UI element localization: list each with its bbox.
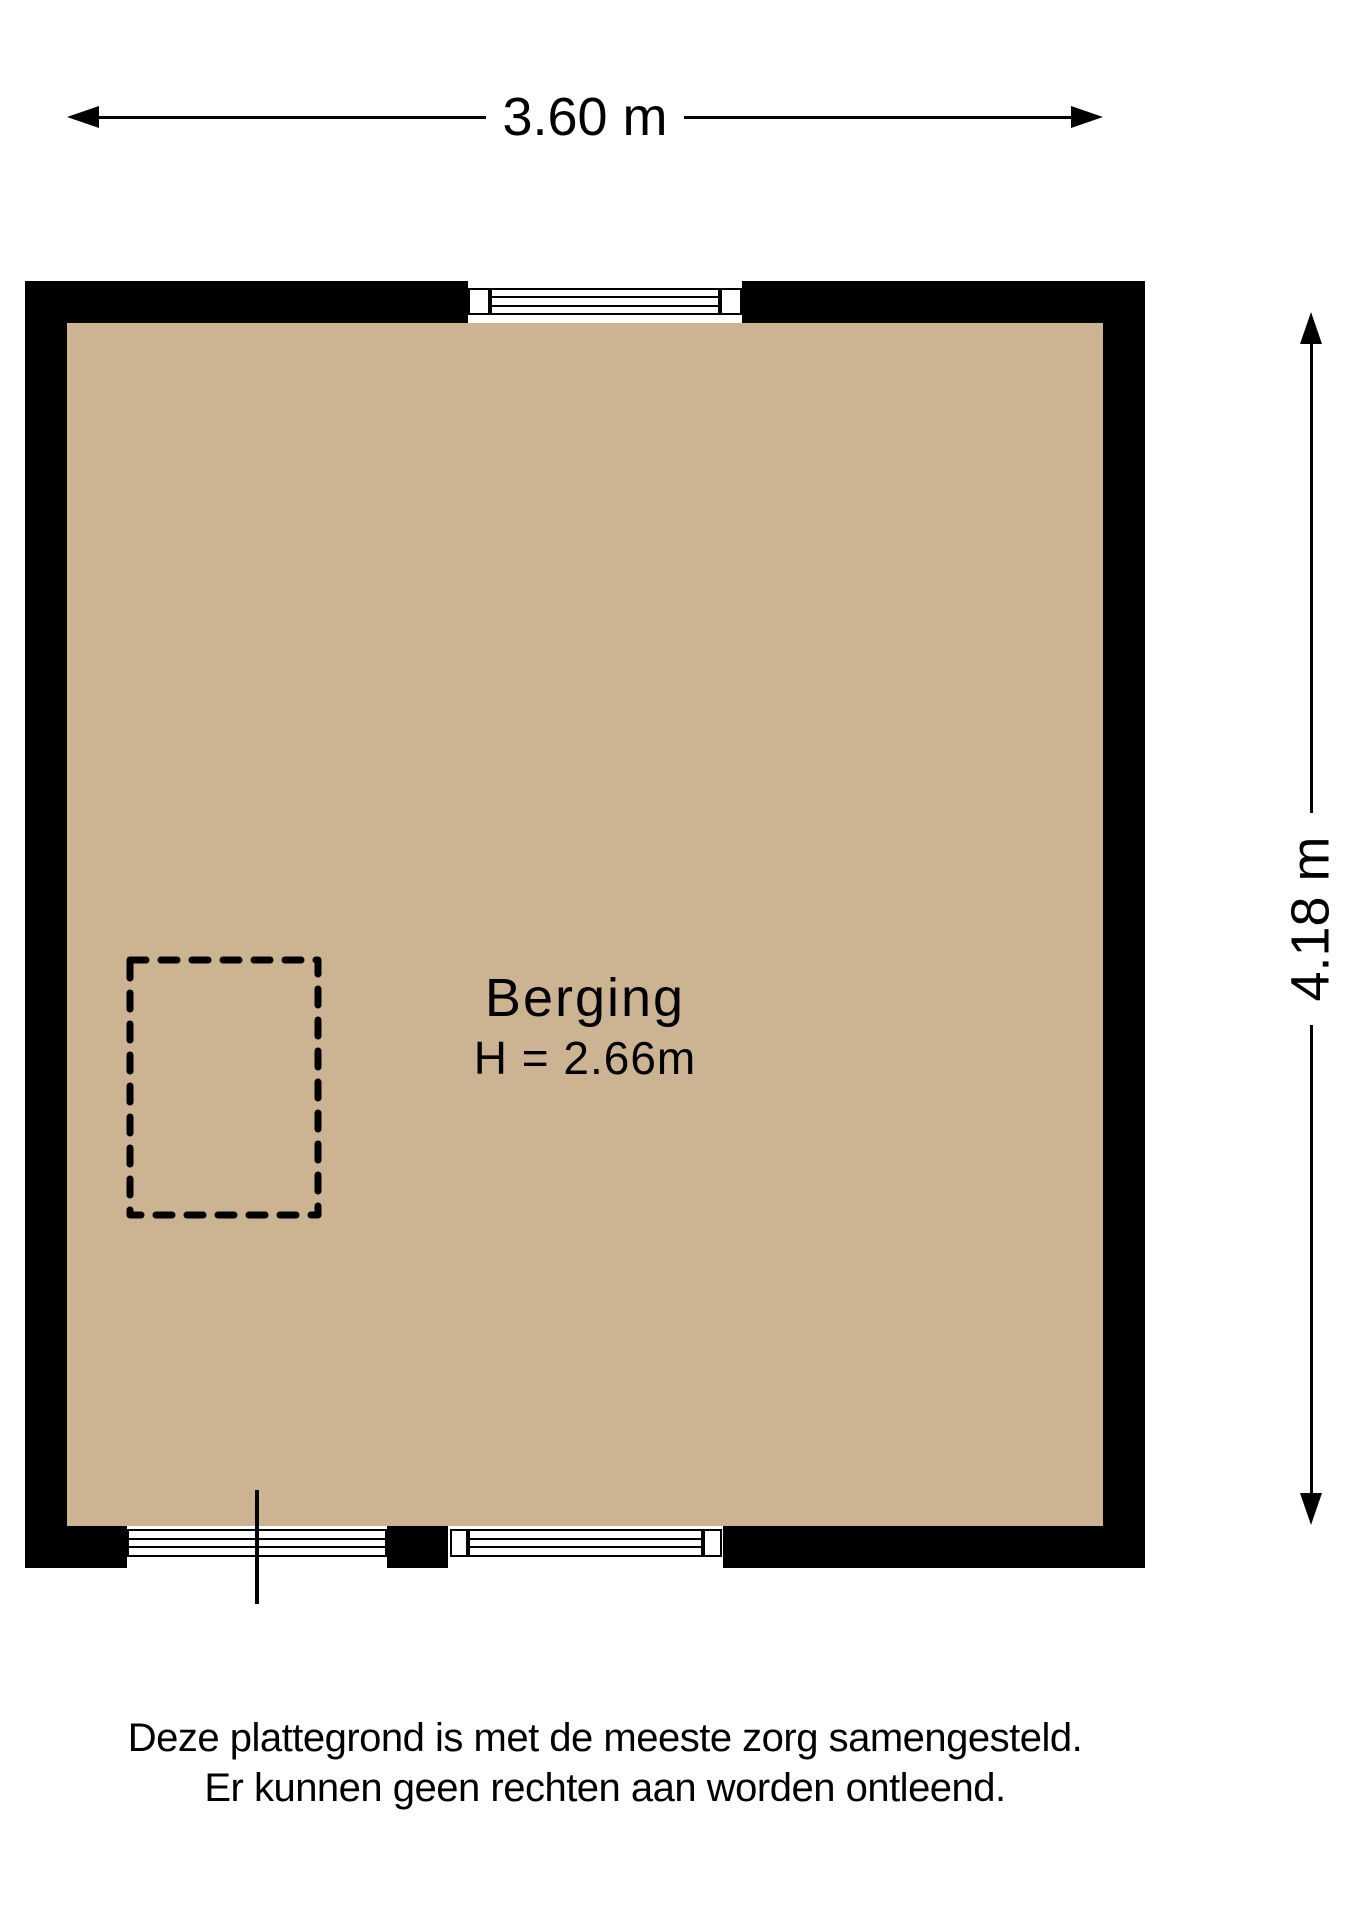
dimension-line-top <box>1310 344 1313 813</box>
room-ceiling-height: H = 2.66m <box>67 1031 1103 1085</box>
floorplan-page: 3.60 m <box>0 0 1358 1920</box>
window-pane <box>470 1538 701 1547</box>
window-pane <box>470 1531 701 1538</box>
height-dimension: 4.18 m <box>1288 312 1334 1525</box>
dimension-line-right <box>684 116 1071 119</box>
arrow-down-icon <box>1300 1493 1322 1525</box>
floor-plan: Berging H = 2.66m <box>25 281 1145 1568</box>
window-top <box>490 288 720 315</box>
room-name: Berging <box>67 968 1103 1028</box>
room-floor <box>67 323 1103 1526</box>
disclaimer: Deze plattegrond is met de meeste zorg s… <box>0 1713 1210 1813</box>
window-frame-end <box>720 288 742 315</box>
height-dimension-label-wrap: 4.18 m <box>1228 813 1358 1025</box>
window-bottom-middle <box>468 1529 703 1557</box>
window-frame-end <box>468 288 490 315</box>
door-marker-line <box>255 1490 259 1604</box>
window-pane <box>492 296 718 304</box>
window-pane <box>470 1546 701 1555</box>
arrow-right-icon <box>1071 106 1103 128</box>
dimension-line-bottom <box>1310 1025 1313 1494</box>
window-pane <box>492 305 718 313</box>
disclaimer-line2: Er kunnen geen rechten aan worden ontlee… <box>0 1763 1210 1813</box>
room-label: Berging H = 2.66m <box>67 968 1103 1085</box>
window-frame-end <box>450 1529 468 1557</box>
window-frame-end <box>703 1529 722 1557</box>
width-dimension-label: 3.60 m <box>486 86 683 148</box>
disclaimer-line1: Deze plattegrond is met de meeste zorg s… <box>0 1713 1210 1763</box>
height-dimension-label: 4.18 m <box>1280 836 1342 1001</box>
dimension-line-left <box>99 116 486 119</box>
arrow-up-icon <box>1300 312 1322 344</box>
width-dimension: 3.60 m <box>67 87 1103 147</box>
arrow-left-icon <box>67 106 99 128</box>
